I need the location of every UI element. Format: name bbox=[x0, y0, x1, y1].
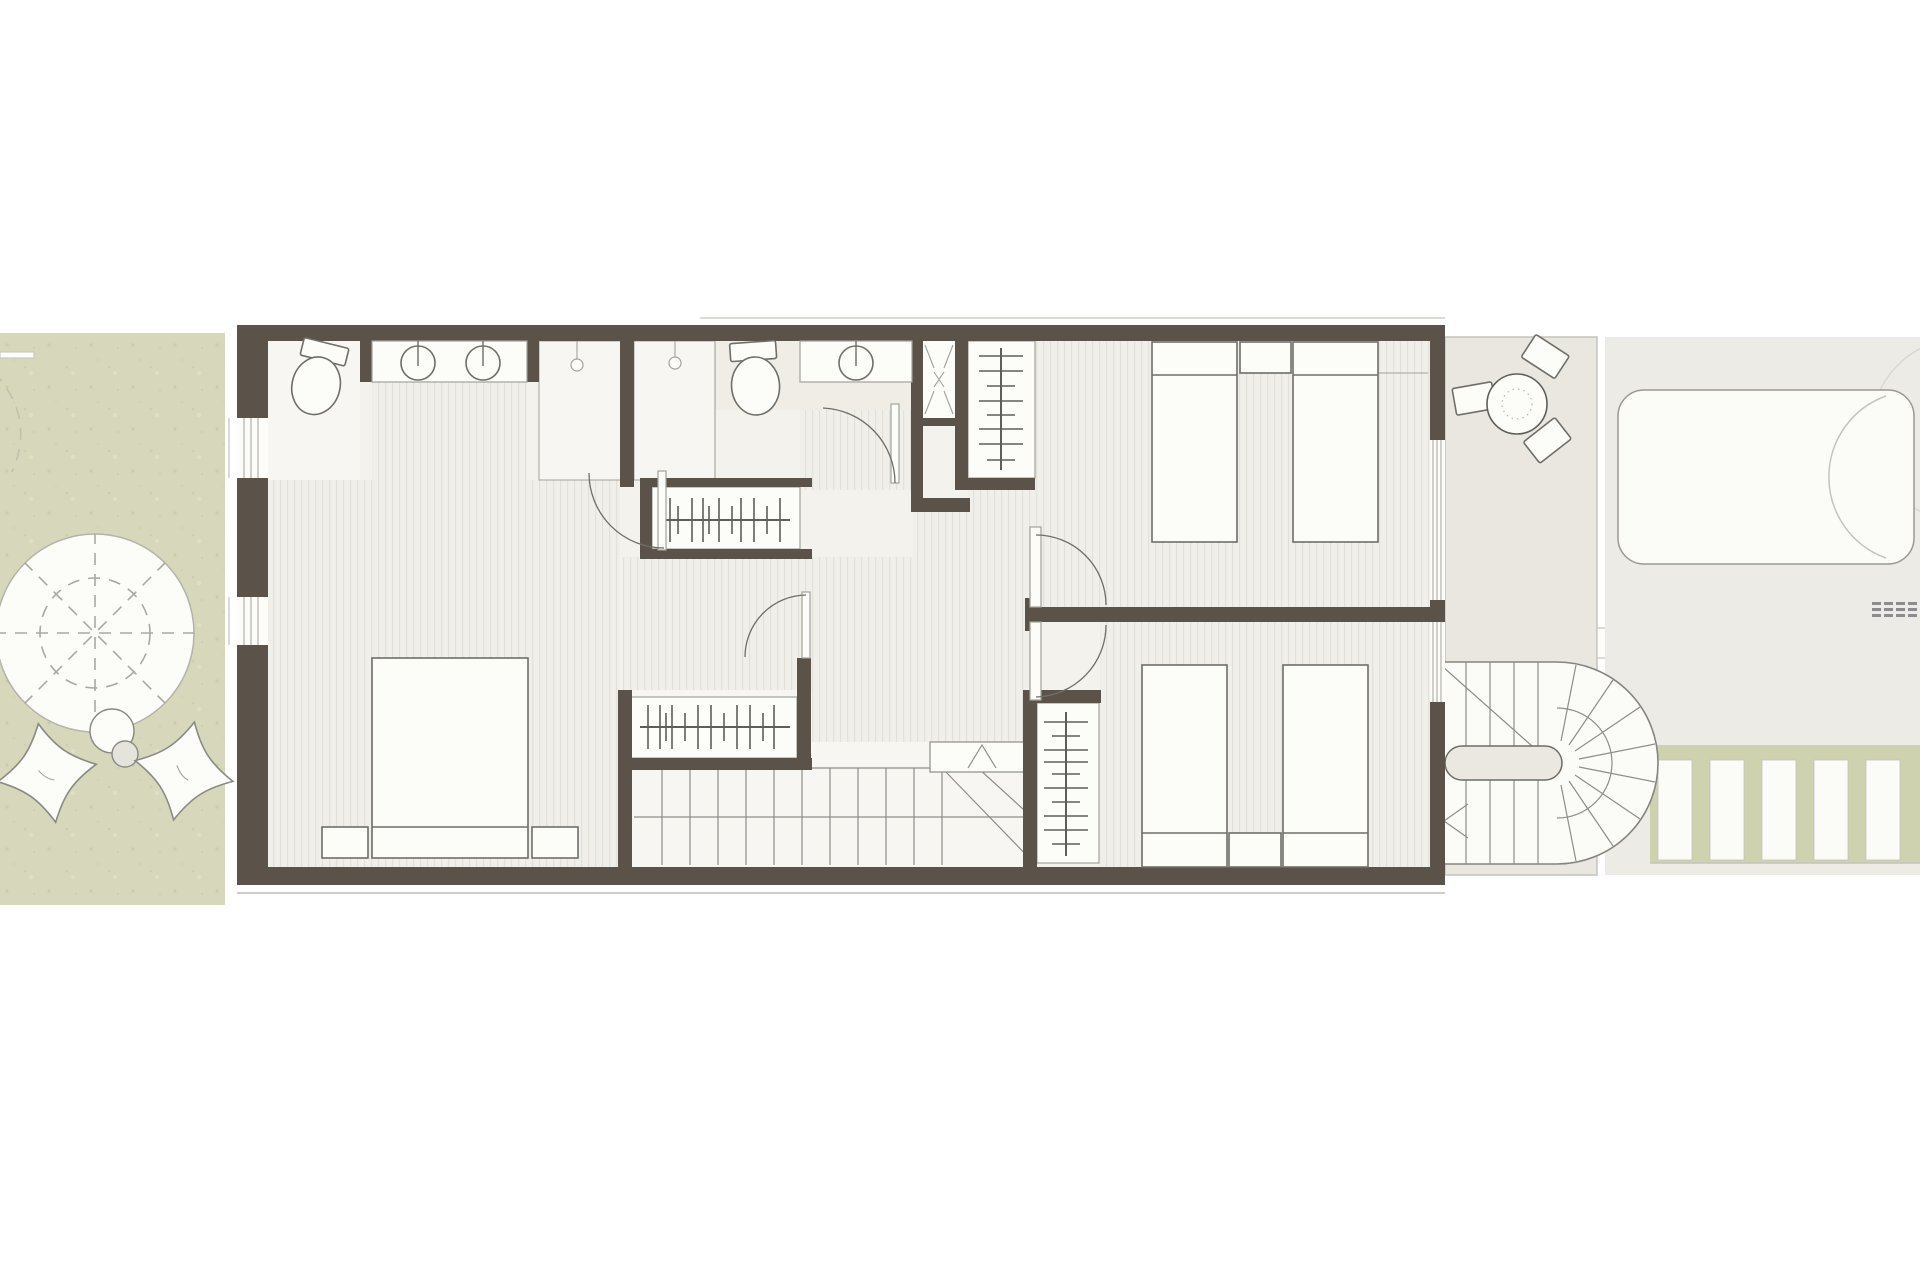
nightstand bbox=[1229, 833, 1281, 867]
pool-daybed bbox=[1618, 390, 1914, 564]
single-bed bbox=[1293, 342, 1378, 542]
nightstand bbox=[322, 827, 368, 858]
window bbox=[1430, 622, 1445, 702]
house-plan bbox=[237, 325, 1445, 885]
hall-floor bbox=[812, 557, 1035, 742]
nightstand bbox=[1240, 342, 1291, 373]
stair-core bbox=[1445, 746, 1562, 780]
wardrobe bbox=[652, 487, 800, 549]
double-bed bbox=[372, 658, 528, 858]
ventilation-shaft bbox=[923, 341, 955, 418]
window bbox=[237, 418, 268, 478]
master-bedroom-floor bbox=[372, 382, 527, 480]
deck-slats bbox=[1650, 745, 1920, 863]
wardrobe bbox=[1037, 703, 1099, 863]
hall-floor bbox=[622, 557, 812, 697]
single-bed bbox=[1142, 665, 1227, 867]
window bbox=[237, 597, 268, 645]
garden bbox=[0, 333, 243, 905]
garden-edge-marker bbox=[0, 352, 34, 358]
window bbox=[1430, 440, 1445, 600]
spiral-staircase bbox=[1443, 662, 1658, 864]
single-bed bbox=[1283, 665, 1368, 867]
floor-plan-page bbox=[0, 0, 1920, 1280]
vanity-counter bbox=[372, 341, 527, 382]
single-bed bbox=[1152, 342, 1237, 542]
floor-plan-drawing bbox=[0, 0, 1920, 1280]
nightstand bbox=[532, 827, 578, 858]
